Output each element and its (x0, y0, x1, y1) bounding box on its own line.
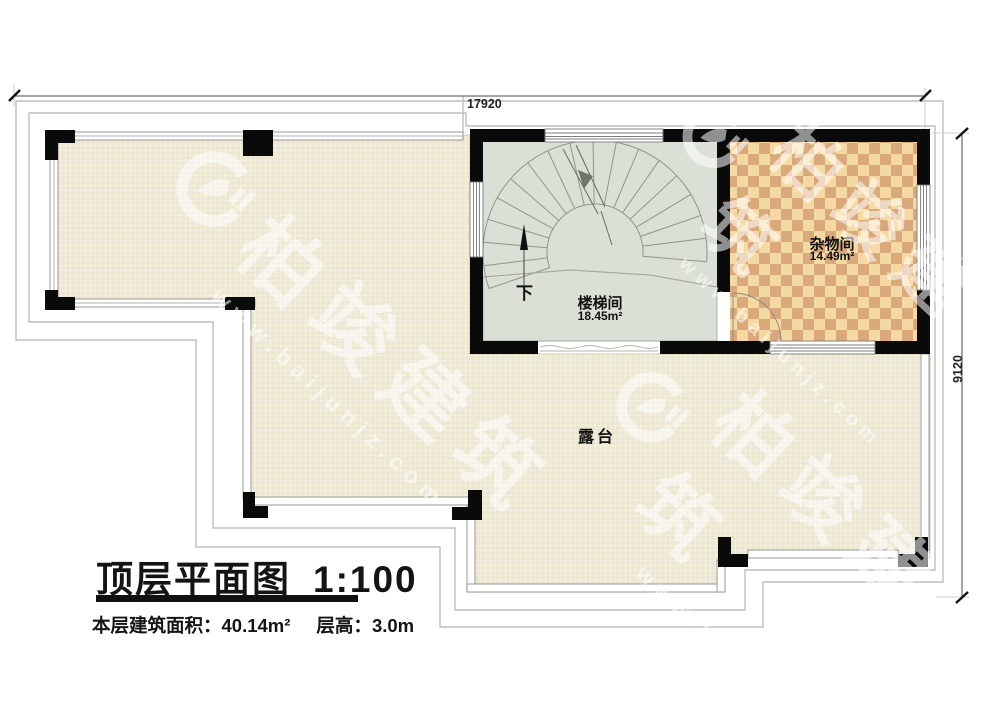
terrace-name: 露台 (552, 423, 642, 447)
floor-plan-canvas: 17920 9120 下 楼梯间 18.45m² 杂物间 14.49m² 露台 … (0, 0, 1000, 706)
stairwell-top-window (545, 129, 663, 142)
area-label: 本层建筑面积： (92, 612, 222, 638)
storage-bottom-window (770, 341, 875, 354)
storage-right-window (917, 185, 930, 290)
dimension-top-label: 17920 (467, 97, 502, 111)
title-underline (96, 595, 358, 602)
stairwell-area: 18.45m² (555, 309, 645, 323)
floor-height-label: 层高： (316, 612, 372, 638)
floor-height-value: 3.0m (372, 615, 414, 637)
area-value: 40.14m² (222, 615, 291, 637)
floor-info: 本层建筑面积： 40.14m² 层高： 3.0m (92, 612, 414, 638)
storage-area: 14.49m² (787, 249, 877, 263)
stairwell-left-window (470, 182, 483, 257)
dimension-right-label: 9120 (951, 349, 965, 389)
terrace-door-threshold (540, 346, 658, 352)
stairs-down-label: 下 (516, 279, 533, 304)
